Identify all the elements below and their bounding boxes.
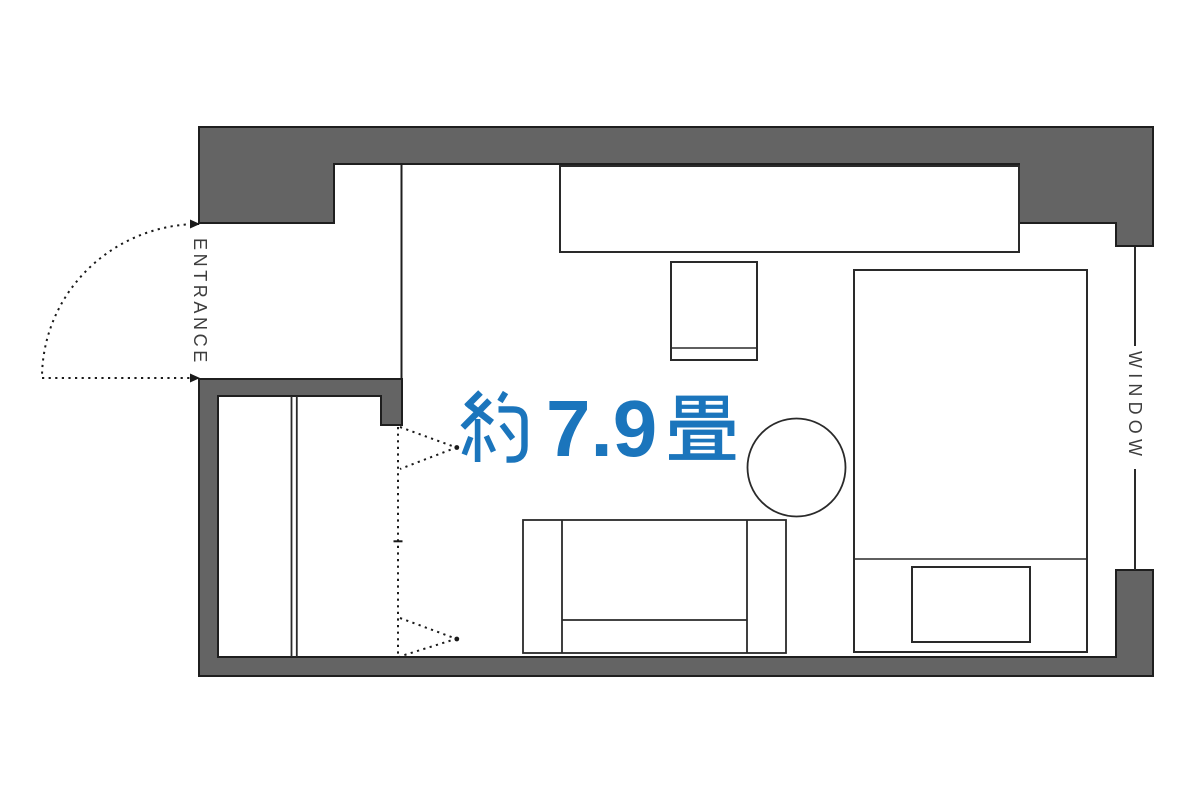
svg-text:WINDOW: WINDOW — [1125, 351, 1145, 461]
svg-text:7.9: 7.9 — [546, 384, 657, 473]
svg-text:ENTRANCE: ENTRANCE — [190, 238, 210, 366]
